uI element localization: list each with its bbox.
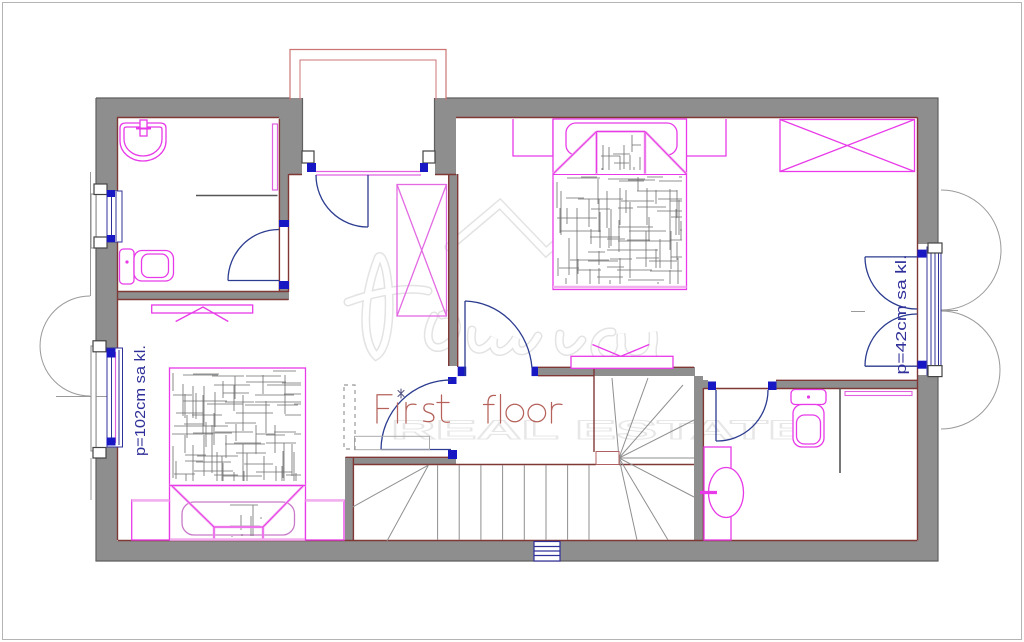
svg-text:REAL ESTATE: REAL ESTATE bbox=[391, 415, 809, 445]
svg-text:p=102cm sa kl.: p=102cm sa kl. bbox=[132, 345, 149, 456]
svg-text:p=42cm sa kl.: p=42cm sa kl. bbox=[893, 255, 910, 375]
